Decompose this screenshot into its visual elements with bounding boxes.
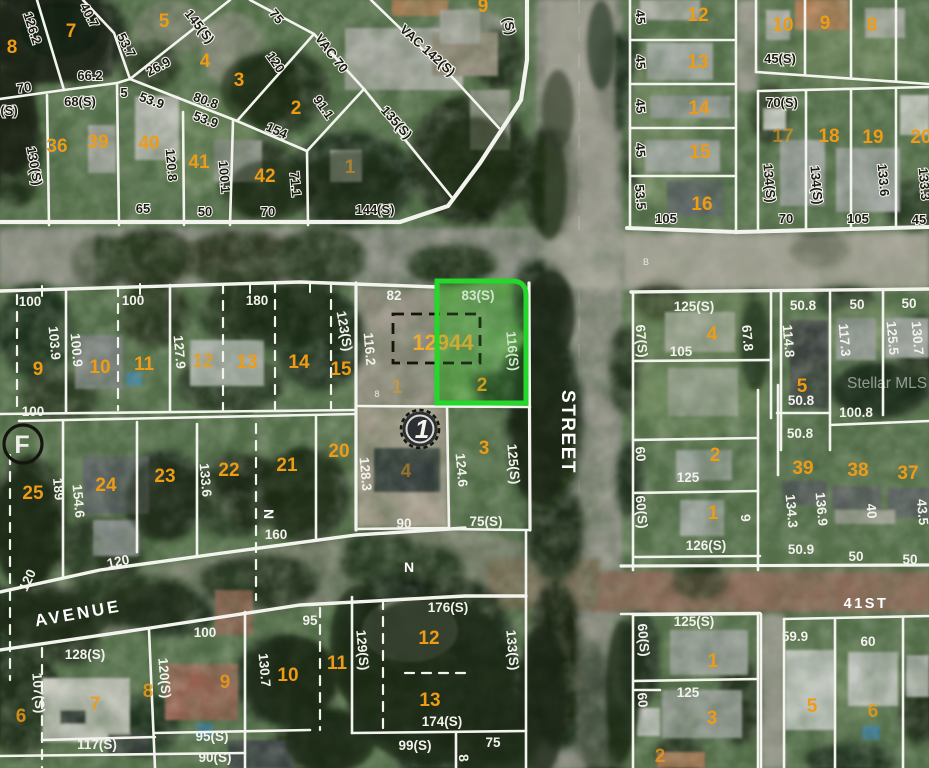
svg-text:8: 8 [7, 37, 18, 58]
svg-text:128(S): 128(S) [65, 647, 106, 662]
svg-text:42: 42 [254, 166, 275, 187]
svg-text:15: 15 [330, 359, 352, 380]
svg-text:136.9: 136.9 [813, 492, 831, 527]
svg-text:100: 100 [122, 293, 145, 308]
svg-text:70: 70 [16, 79, 32, 96]
svg-text:174(S): 174(S) [422, 714, 463, 729]
svg-text:23: 23 [154, 466, 175, 487]
svg-text:50.9: 50.9 [788, 542, 814, 557]
svg-text:45: 45 [632, 98, 648, 114]
svg-text:154.6: 154.6 [70, 484, 88, 519]
svg-text:50: 50 [848, 549, 863, 564]
svg-text:70(S): 70(S) [766, 95, 798, 110]
svg-text:95: 95 [302, 613, 318, 628]
svg-text:39: 39 [87, 132, 108, 153]
svg-text:1: 1 [345, 157, 356, 178]
svg-text:160: 160 [265, 527, 288, 542]
svg-text:100: 100 [19, 294, 42, 309]
svg-text:20: 20 [910, 127, 929, 148]
svg-text:50: 50 [198, 204, 212, 219]
svg-text:8: 8 [867, 15, 878, 36]
svg-text:134.3: 134.3 [783, 494, 801, 529]
svg-text:1: 1 [415, 414, 429, 444]
svg-text:65: 65 [136, 201, 150, 216]
svg-text:100: 100 [22, 404, 45, 419]
svg-text:45: 45 [632, 142, 648, 158]
svg-text:4: 4 [200, 51, 211, 72]
svg-text:5: 5 [159, 11, 170, 32]
svg-text:N: N [261, 509, 277, 519]
svg-text:50: 50 [849, 297, 864, 312]
svg-text:90: 90 [396, 516, 411, 531]
svg-text:4: 4 [401, 461, 412, 482]
svg-text:189: 189 [50, 477, 67, 501]
svg-text:2: 2 [291, 98, 302, 119]
svg-text:14: 14 [288, 352, 310, 373]
svg-text:180: 180 [246, 293, 269, 308]
svg-text:7: 7 [66, 21, 77, 42]
svg-text:45: 45 [912, 212, 926, 227]
svg-text:41: 41 [188, 152, 210, 173]
svg-text:125(S): 125(S) [674, 614, 715, 629]
svg-text:25: 25 [22, 483, 44, 504]
svg-text:130.7: 130.7 [909, 321, 927, 356]
svg-text:125: 125 [677, 685, 700, 700]
svg-text:21: 21 [276, 455, 298, 476]
svg-text:40: 40 [138, 133, 159, 154]
svg-text:120.8: 120.8 [163, 148, 181, 182]
svg-text:176(S): 176(S) [428, 600, 469, 615]
svg-text:100.1: 100.1 [216, 160, 234, 194]
svg-text:60: 60 [860, 634, 875, 649]
svg-text:12: 12 [687, 5, 708, 26]
svg-text:5: 5 [807, 696, 818, 717]
svg-text:22: 22 [218, 460, 239, 481]
svg-text:24: 24 [95, 475, 117, 496]
svg-text:71.1: 71.1 [287, 171, 304, 198]
svg-text:40: 40 [863, 503, 879, 519]
svg-text:13: 13 [419, 690, 440, 711]
svg-text:43.5: 43.5 [914, 498, 929, 526]
svg-text:45(S): 45(S) [764, 51, 796, 66]
svg-text:12: 12 [418, 628, 439, 649]
svg-text:95(S): 95(S) [195, 729, 228, 744]
svg-text:11: 11 [327, 653, 348, 674]
svg-text:9: 9 [478, 0, 489, 17]
svg-text:50: 50 [901, 296, 916, 311]
svg-text:50: 50 [902, 552, 917, 567]
svg-text:12: 12 [192, 351, 213, 372]
svg-text:10: 10 [277, 665, 298, 686]
svg-text:144(S): 144(S) [355, 202, 394, 217]
svg-text:68(S): 68(S) [64, 94, 96, 109]
svg-text:(S): (S) [0, 103, 17, 118]
svg-text:7: 7 [90, 694, 101, 715]
svg-text:125(S): 125(S) [674, 299, 715, 314]
svg-text:20: 20 [328, 441, 349, 462]
svg-text:50.8: 50.8 [787, 426, 814, 441]
svg-text:59.9: 59.9 [782, 629, 808, 644]
svg-text:60: 60 [634, 692, 650, 708]
svg-text:14: 14 [688, 98, 710, 119]
svg-text:15: 15 [689, 142, 711, 163]
svg-text:9: 9 [220, 672, 231, 693]
svg-text:60(S): 60(S) [635, 623, 653, 657]
svg-text:2: 2 [655, 746, 666, 767]
svg-text:3: 3 [479, 438, 490, 459]
svg-text:N: N [404, 559, 414, 575]
svg-text:75: 75 [485, 735, 501, 750]
svg-text:99(S): 99(S) [398, 738, 431, 753]
svg-text:11: 11 [134, 354, 155, 375]
svg-text:133.6: 133.6 [875, 163, 893, 197]
svg-text:133.6: 133.6 [197, 463, 215, 498]
svg-text:5: 5 [120, 85, 127, 100]
svg-text:13: 13 [236, 352, 257, 373]
svg-text:Stellar MLS: Stellar MLS [847, 375, 927, 392]
svg-text:6: 6 [16, 706, 27, 727]
svg-text:45: 45 [632, 54, 648, 70]
svg-text:67(S): 67(S) [633, 324, 651, 358]
svg-text:66.2: 66.2 [77, 68, 102, 83]
svg-text:70: 70 [261, 204, 275, 219]
svg-text:16: 16 [691, 194, 712, 215]
svg-text:125.5: 125.5 [884, 321, 902, 356]
svg-text:117.3: 117.3 [836, 323, 854, 358]
svg-text:70: 70 [779, 211, 793, 226]
svg-text:116.2: 116.2 [361, 332, 379, 366]
svg-text:82: 82 [386, 288, 401, 303]
svg-text:105: 105 [655, 211, 677, 226]
svg-text:13: 13 [687, 52, 708, 73]
svg-text:100: 100 [194, 625, 217, 640]
svg-text:38: 38 [847, 460, 868, 481]
svg-text:36: 36 [46, 136, 67, 157]
svg-text:45: 45 [632, 9, 648, 25]
svg-text:9: 9 [738, 514, 754, 523]
svg-text:F: F [14, 431, 29, 459]
svg-text:B: B [643, 257, 649, 267]
svg-text:114.8: 114.8 [780, 324, 798, 359]
svg-text:127.9: 127.9 [171, 335, 189, 370]
svg-text:124.6: 124.6 [453, 453, 471, 488]
svg-text:1: 1 [708, 651, 719, 672]
svg-text:4: 4 [707, 324, 718, 345]
svg-text:41ST: 41ST [844, 596, 889, 612]
svg-text:130.7: 130.7 [256, 653, 274, 688]
svg-text:10: 10 [89, 357, 110, 378]
svg-text:37: 37 [897, 463, 918, 484]
svg-text:17: 17 [772, 126, 793, 147]
svg-text:53.5: 53.5 [632, 184, 649, 211]
svg-text:39: 39 [792, 458, 813, 479]
svg-text:2: 2 [710, 445, 721, 466]
svg-text:8: 8 [143, 681, 154, 702]
svg-text:3: 3 [707, 708, 718, 729]
svg-text:60(S): 60(S) [633, 495, 651, 529]
svg-text:50.8: 50.8 [790, 298, 817, 313]
svg-text:103.9: 103.9 [46, 326, 64, 361]
svg-text:75(S): 75(S) [469, 514, 502, 529]
svg-text:3: 3 [234, 70, 245, 91]
svg-text:105: 105 [847, 211, 869, 226]
svg-text:6: 6 [868, 701, 879, 722]
svg-text:117(S): 117(S) [77, 737, 117, 752]
svg-text:125: 125 [677, 470, 700, 485]
svg-text:18: 18 [818, 126, 839, 147]
svg-text:10: 10 [772, 15, 793, 36]
svg-text:STREET: STREET [557, 390, 578, 474]
svg-text:126(S): 126(S) [686, 538, 727, 553]
svg-text:19: 19 [862, 127, 883, 148]
svg-text:60: 60 [632, 446, 648, 462]
svg-text:128.3: 128.3 [357, 457, 375, 492]
svg-text:90(S): 90(S) [198, 750, 231, 765]
svg-text:9: 9 [820, 13, 831, 34]
svg-text:105: 105 [670, 344, 693, 359]
svg-text:1: 1 [392, 377, 403, 398]
svg-text:100.8: 100.8 [839, 405, 873, 420]
svg-text:67.8: 67.8 [739, 324, 756, 352]
svg-text:8: 8 [374, 389, 379, 399]
svg-text:9: 9 [33, 359, 44, 380]
svg-text:100.9: 100.9 [68, 333, 86, 368]
svg-text:1: 1 [708, 503, 719, 524]
svg-text:5: 5 [797, 376, 808, 397]
